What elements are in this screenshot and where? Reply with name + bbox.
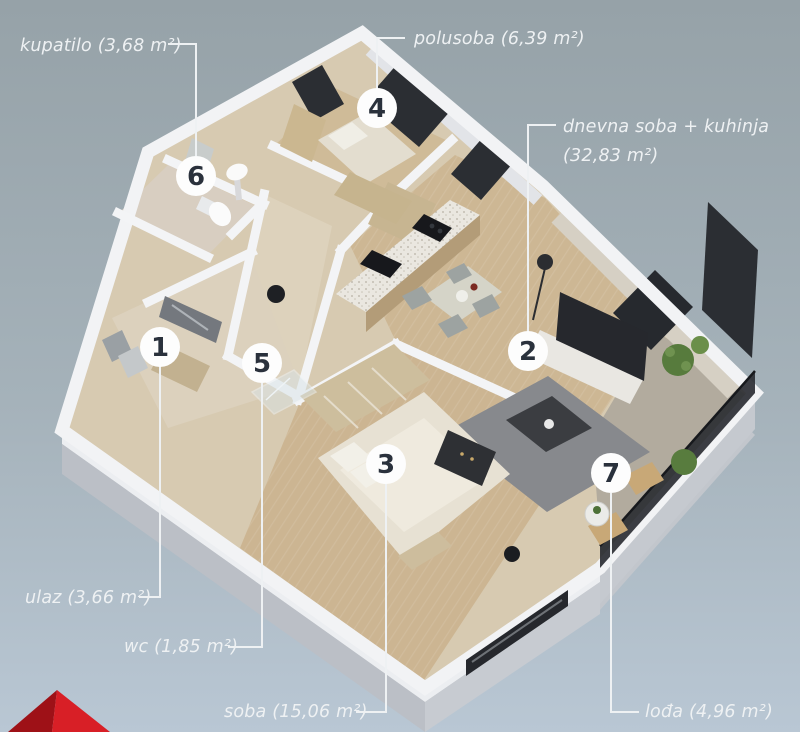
room-marker-6: 6 (176, 156, 216, 196)
room-label-wc: wc (1,85 m²) (124, 637, 238, 657)
room-marker-4: 4 (357, 88, 397, 128)
room-label-dnevna-line1: dnevna soba + kuhinja (563, 117, 769, 137)
room-marker-1: 1 (140, 327, 180, 367)
marker-number: 2 (519, 337, 537, 367)
marker-number: 7 (602, 459, 620, 489)
bedroom-lamp-icon (504, 546, 520, 562)
room-label-polusoba: polusoba (6,39 m²) (413, 29, 585, 49)
room-label-lodja: lođa (4,96 m²) (645, 702, 773, 722)
room-marker-2: 2 (508, 331, 548, 371)
room-label-kupatilo: kupatilo (3,68 m²) (20, 36, 182, 56)
marker-number: 5 (253, 349, 271, 379)
plant-icon (691, 336, 709, 354)
marker-number: 4 (368, 94, 386, 124)
marker-number: 1 (151, 333, 169, 363)
floor-plan-canvas: 1 2 3 4 5 6 7 kupatilo (3,68 m²) poluso (0, 0, 800, 732)
room-marker-3: 3 (366, 444, 406, 484)
floor-plan-image: 1 2 3 4 5 6 7 kupatilo (3,68 m²) poluso (0, 0, 800, 732)
room-label-soba: soba (15,06 m²) (224, 702, 368, 722)
room-marker-7: 7 (591, 453, 631, 493)
room-label-dnevna-line2: (32,83 m²) (563, 146, 658, 166)
plant-icon (671, 449, 697, 475)
hall-lamp-icon (267, 285, 285, 303)
room-label-ulaz: ulaz (3,66 m²) (25, 588, 151, 608)
marker-number: 3 (377, 450, 395, 480)
room-marker-5: 5 (242, 343, 282, 383)
vase (470, 283, 477, 290)
floor-lamp-icon (537, 254, 553, 270)
marker-number: 6 (187, 162, 205, 192)
